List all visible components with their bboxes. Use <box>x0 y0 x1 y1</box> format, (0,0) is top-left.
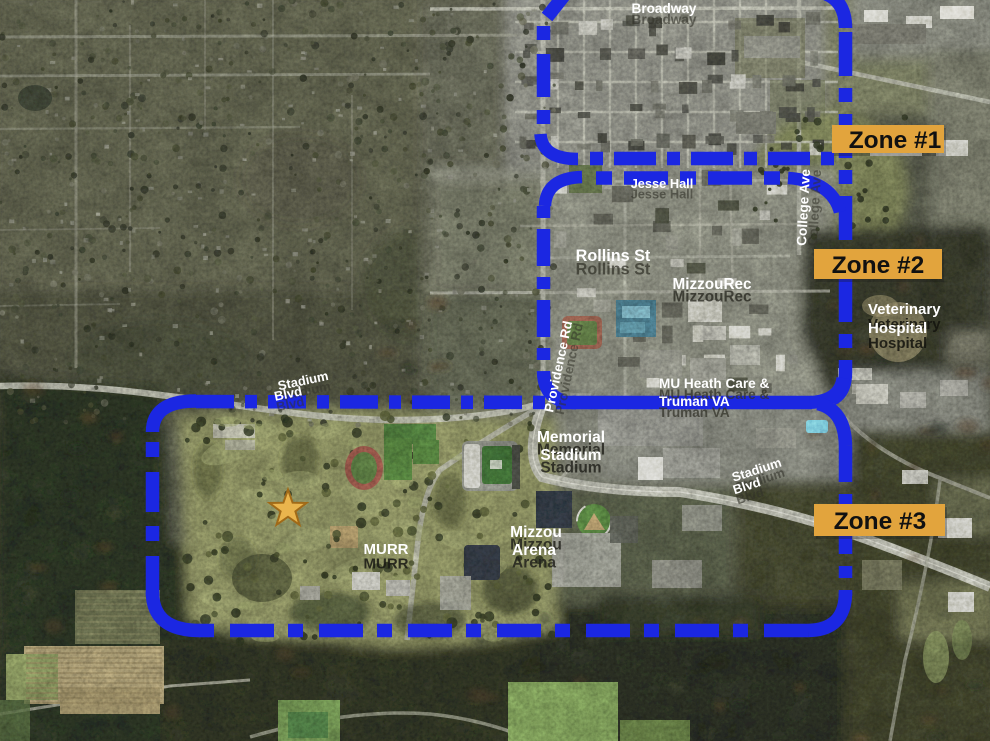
svg-text:Arena: Arena <box>512 542 556 559</box>
svg-text:Mizzou: Mizzou <box>510 524 562 541</box>
svg-text:Memorial: Memorial <box>537 429 605 446</box>
svg-text:Zone #3: Zone #3 <box>834 508 927 535</box>
svg-text:Zone #1: Zone #1 <box>849 127 942 154</box>
svg-text:MU Heath Care &: MU Heath Care & <box>659 376 769 391</box>
svg-text:MizzouRec: MizzouRec <box>672 276 752 293</box>
svg-text:MURR: MURR <box>364 541 409 558</box>
svg-text:Hospital: Hospital <box>868 335 927 352</box>
svg-text:Broadway: Broadway <box>632 1 697 16</box>
svg-text:Veterinary: Veterinary <box>868 301 941 318</box>
svg-text:Rollins St: Rollins St <box>576 247 651 265</box>
svg-text:Zone #2: Zone #2 <box>832 252 925 279</box>
svg-text:Jesse Hall: Jesse Hall <box>631 176 694 191</box>
svg-text:Hospital: Hospital <box>868 320 927 337</box>
svg-text:Stadium: Stadium <box>540 447 601 464</box>
svg-text:Truman VA: Truman VA <box>659 394 730 409</box>
svg-text:MURR: MURR <box>364 556 409 573</box>
